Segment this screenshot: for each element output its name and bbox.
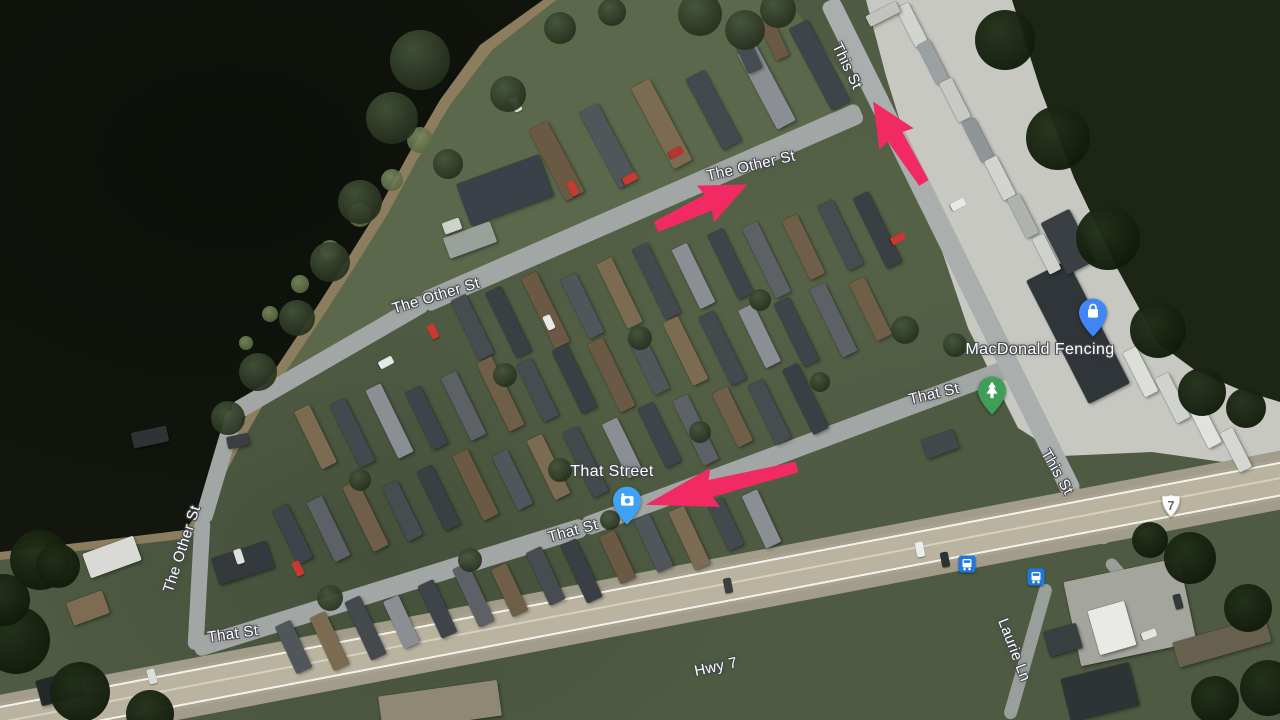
map-trailer — [329, 398, 375, 468]
map-trailer — [515, 358, 558, 423]
map-building — [1061, 662, 1140, 720]
tree-canopy — [317, 585, 343, 611]
map-trailer — [782, 214, 826, 281]
map-trailer — [417, 464, 461, 531]
shield-number: 7 — [1168, 499, 1175, 513]
tree-canopy — [349, 469, 371, 491]
map-trailer — [849, 276, 892, 341]
tree-canopy — [50, 662, 110, 720]
tree-canopy — [211, 401, 245, 435]
map-trailer — [773, 297, 819, 367]
route-shield-icon: 7 — [1157, 493, 1185, 520]
tree-canopy — [490, 76, 526, 112]
tree-canopy — [891, 316, 919, 344]
map-trailer — [637, 402, 681, 469]
map-trailer — [551, 343, 597, 413]
map-trailer — [668, 505, 710, 570]
map-scene[interactable]: 7 This StThe Other StThe Other StThe Oth… — [0, 0, 1280, 720]
tree-canopy — [1226, 388, 1266, 428]
island-vegetation — [239, 336, 253, 350]
bus-icon — [959, 556, 976, 573]
map-trailer — [450, 293, 494, 360]
map-trailer — [712, 387, 754, 448]
tree-canopy — [544, 12, 576, 44]
map-trailer — [742, 489, 782, 549]
tree-canopy — [338, 180, 382, 224]
island-vegetation — [262, 306, 278, 322]
map-trailer — [738, 303, 781, 368]
highway-7-shield: 7 — [1157, 493, 1185, 520]
map-car — [890, 231, 907, 245]
island-vegetation — [291, 275, 309, 293]
map-trailer — [452, 449, 499, 521]
map-car — [426, 323, 440, 340]
tree-canopy — [390, 30, 450, 90]
road-label: That St — [206, 622, 259, 646]
tree-canopy — [689, 421, 711, 443]
map-trailer — [404, 385, 447, 450]
tree-canopy — [1178, 368, 1226, 416]
park-tree-pin[interactable] — [977, 376, 1007, 416]
map-trailer — [307, 495, 351, 562]
map-trailer — [293, 404, 336, 469]
tree-canopy — [749, 289, 771, 311]
tree-canopy — [458, 548, 482, 572]
bus-stop-icon-1[interactable] — [959, 556, 976, 573]
tree-canopy — [493, 363, 517, 387]
map-building — [921, 429, 960, 459]
tree-canopy — [1076, 206, 1140, 270]
shopping-bag-icon — [1078, 298, 1108, 338]
tree-canopy — [1224, 584, 1272, 632]
map-trailer — [381, 480, 423, 541]
photo-camera-icon — [612, 486, 642, 526]
tree-canopy — [239, 353, 277, 391]
tree-canopy — [1191, 676, 1239, 720]
bus-stop-icon-2[interactable] — [1028, 569, 1045, 586]
map-building — [1043, 623, 1083, 657]
map-trailer — [342, 480, 389, 552]
photo-camera-pin[interactable] — [612, 486, 642, 526]
tree-canopy — [433, 149, 463, 179]
map-trailer — [561, 272, 605, 339]
poi-label[interactable]: That Street — [570, 463, 654, 481]
tree-canopy — [310, 242, 350, 282]
tree-canopy — [1132, 522, 1168, 558]
tree-canopy — [366, 92, 418, 144]
map-trailer — [747, 379, 791, 446]
map-trailer — [440, 371, 486, 441]
map-car — [378, 355, 395, 369]
tree-canopy — [1164, 532, 1216, 584]
map-trailer — [491, 449, 533, 510]
map-trailer — [671, 243, 715, 310]
tree-canopy — [975, 10, 1035, 70]
tree-canopy — [279, 300, 315, 336]
tree-canopy — [548, 458, 572, 482]
road-label: Hwy 7 — [693, 654, 739, 680]
map-building — [378, 680, 502, 720]
poi-label[interactable]: MacDonald Fencing — [965, 341, 1114, 359]
tree-canopy — [943, 333, 967, 357]
tree-canopy — [1130, 302, 1186, 358]
tree-canopy — [1240, 660, 1280, 716]
map-trailer — [596, 257, 643, 329]
tree-canopy — [725, 10, 765, 50]
bus-icon — [1028, 569, 1045, 586]
tree-canopy — [628, 326, 652, 350]
map-trailer — [599, 530, 636, 584]
tree-canopy — [36, 544, 80, 588]
park-tree-icon — [977, 376, 1007, 416]
map-trailer — [662, 316, 708, 386]
map-trailer — [271, 503, 313, 564]
map-trailer — [809, 282, 858, 358]
map-building — [66, 590, 110, 626]
tree-canopy — [810, 372, 830, 392]
shopping-bag-pin[interactable] — [1078, 298, 1108, 338]
tree-canopy — [1026, 106, 1090, 170]
island-vegetation — [381, 169, 403, 191]
